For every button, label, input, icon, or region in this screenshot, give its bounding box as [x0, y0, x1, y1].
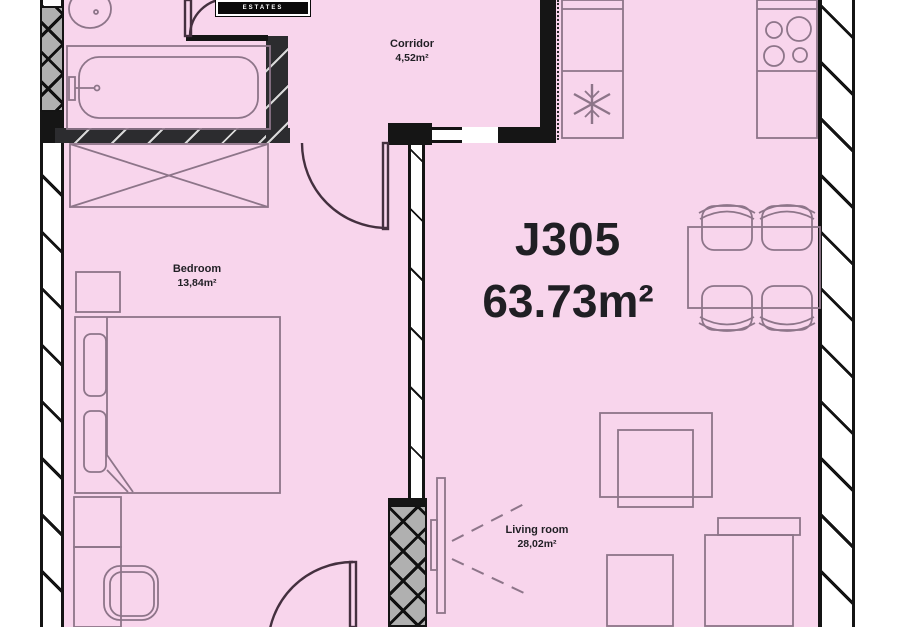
room-area: 28,02m² — [477, 538, 597, 551]
room-name: Bedroom — [137, 263, 257, 277]
sink-icon — [69, 0, 111, 28]
living-room-label: Living room 28,02m² — [477, 524, 597, 551]
dining-table-icon — [688, 227, 820, 308]
stove-icon — [757, 0, 817, 138]
room-area: 4,52m² — [352, 52, 472, 65]
bedroom-bottom-door — [268, 562, 356, 627]
unit-label: J305 63.73m² — [438, 212, 698, 328]
bedroom-label: Bedroom 13,84m² — [137, 263, 257, 290]
logo-text: ESTATES — [243, 5, 284, 11]
bathtub-icon — [67, 46, 270, 129]
estates-logo: ESTATES — [216, 0, 310, 16]
lounge-chair-icon — [705, 518, 800, 626]
room-name: Corridor — [352, 38, 472, 52]
freezer-snowflake-icon — [574, 84, 610, 124]
room-area: 13,84m² — [137, 277, 257, 290]
desk-icon — [74, 547, 121, 627]
desk-chair-icon — [104, 566, 158, 620]
bed-icon — [75, 317, 280, 493]
bedroom-door — [302, 143, 388, 229]
wardrobe-icon — [70, 144, 268, 207]
nightstand-icon — [76, 272, 120, 312]
armchair-icon — [600, 413, 712, 507]
floor-plan: Corridor 4,52m² Bedroom 13,84m² Living r… — [0, 0, 910, 627]
tv-icon — [431, 478, 445, 613]
side-table-icon — [607, 555, 673, 626]
nightstand-icon — [74, 497, 121, 547]
room-name: Living room — [477, 524, 597, 538]
unit-id: J305 — [438, 212, 698, 266]
corridor-label: Corridor 4,52m² — [352, 38, 472, 65]
unit-area: 63.73m² — [438, 274, 698, 328]
